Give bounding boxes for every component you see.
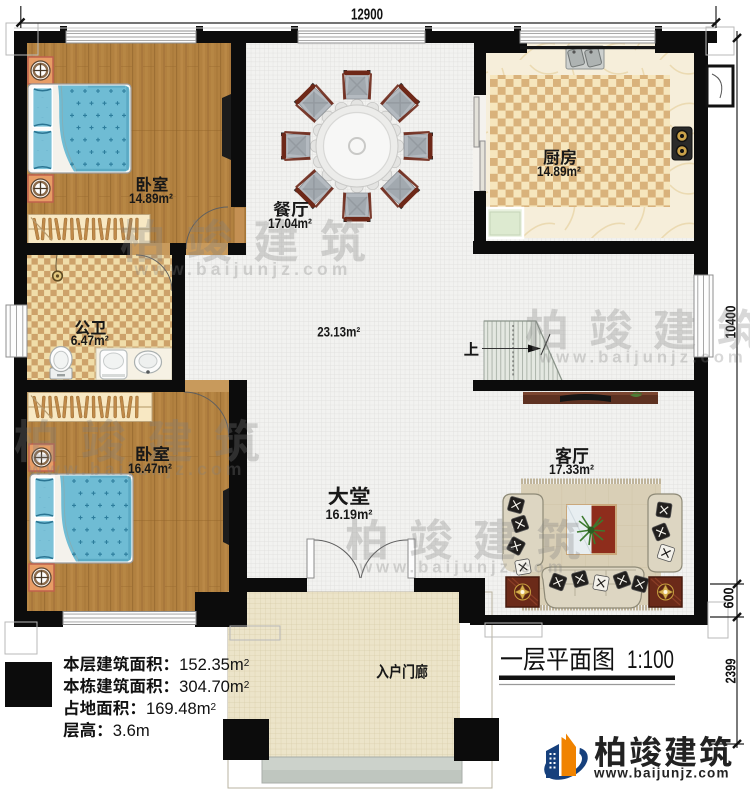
svg-text:本栋建筑面积：304.70m2: 本栋建筑面积：304.70m2 — [63, 673, 250, 697]
svg-text:1:100: 1:100 — [627, 646, 674, 674]
svg-text:2399: 2399 — [723, 659, 740, 684]
svg-text:17.04m²: 17.04m² — [268, 215, 312, 231]
svg-text:16.19m²: 16.19m² — [326, 506, 373, 522]
svg-text:14.89m²: 14.89m² — [537, 163, 581, 179]
svg-text:入户门廊: 入户门廊 — [376, 659, 428, 683]
svg-text:占地面积：169.48m2: 占地面积：169.48m2 — [63, 695, 217, 719]
svg-text:16.47m²: 16.47m² — [128, 460, 172, 476]
svg-text:层高：3.6m: 层高：3.6m — [63, 717, 150, 741]
svg-text:600: 600 — [721, 588, 738, 609]
svg-text:12900: 12900 — [351, 7, 383, 24]
svg-text:14.89m²: 14.89m² — [129, 190, 173, 206]
svg-text:23.13m²: 23.13m² — [317, 324, 360, 340]
svg-text:本层建筑面积：152.35m2: 本层建筑面积：152.35m2 — [63, 651, 250, 675]
svg-text:www.baijunjz.com: www.baijunjz.com — [593, 766, 730, 781]
svg-text:www.baijunjz.com: www.baijunjz.com — [358, 557, 567, 576]
svg-text:www.baijunjz.com: www.baijunjz.com — [538, 347, 747, 366]
svg-text:上: 上 — [464, 338, 480, 360]
svg-text:www.baijunjz.com: www.baijunjz.com — [133, 259, 351, 279]
svg-text:一层平面图: 一层平面图 — [500, 640, 615, 677]
svg-text:6.47m²: 6.47m² — [71, 332, 109, 348]
svg-text:17.33m²: 17.33m² — [549, 461, 594, 477]
